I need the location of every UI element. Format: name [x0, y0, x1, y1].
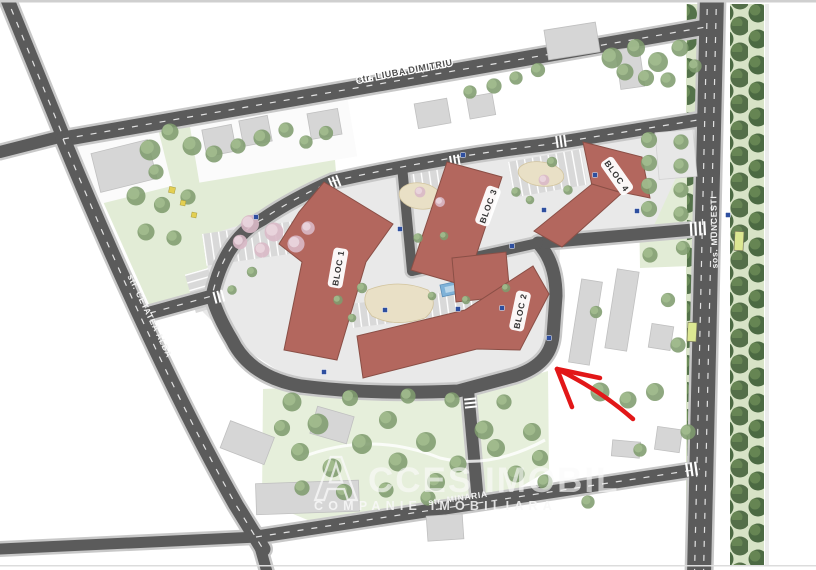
street-label-muncesti: sos. MUNCESTI — [708, 195, 719, 268]
site-plan-map: str. LIUBA DIMITRIU str. CETATEA ALBA so… — [0, 0, 816, 570]
road-west-branch — [0, 136, 63, 152]
watermark-brand: CCES IMOBIL — [368, 461, 619, 500]
road-muncesti — [699, 0, 712, 570]
watermark-tagline: COMPANIE IMOBILIARA — [314, 499, 557, 513]
site-plan-canvas: str. LIUBA DIMITRIU str. CETATEA ALBA so… — [0, 0, 816, 570]
road-southwest-branch — [0, 537, 257, 549]
playground — [365, 284, 434, 323]
